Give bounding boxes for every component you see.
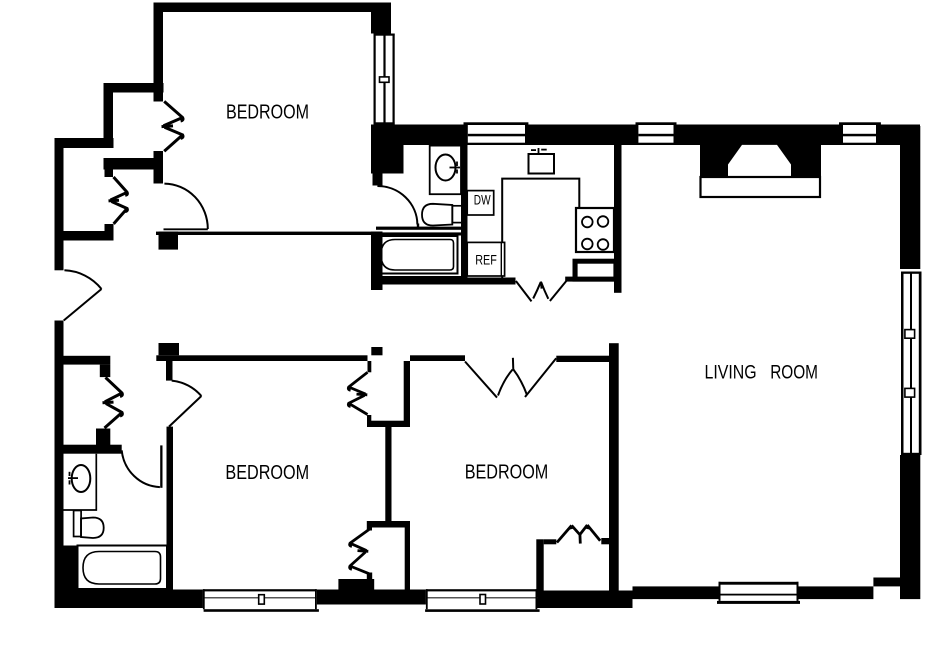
- svg-text:REF: REF: [475, 252, 497, 267]
- svg-text:BEDROOM: BEDROOM: [225, 462, 309, 484]
- svg-text:ROOM: ROOM: [770, 362, 818, 384]
- svg-text:BEDROOM: BEDROOM: [465, 461, 549, 483]
- svg-text:LIVING: LIVING: [705, 362, 757, 384]
- svg-text:BEDROOM: BEDROOM: [226, 101, 309, 123]
- svg-text:DW: DW: [474, 193, 491, 208]
